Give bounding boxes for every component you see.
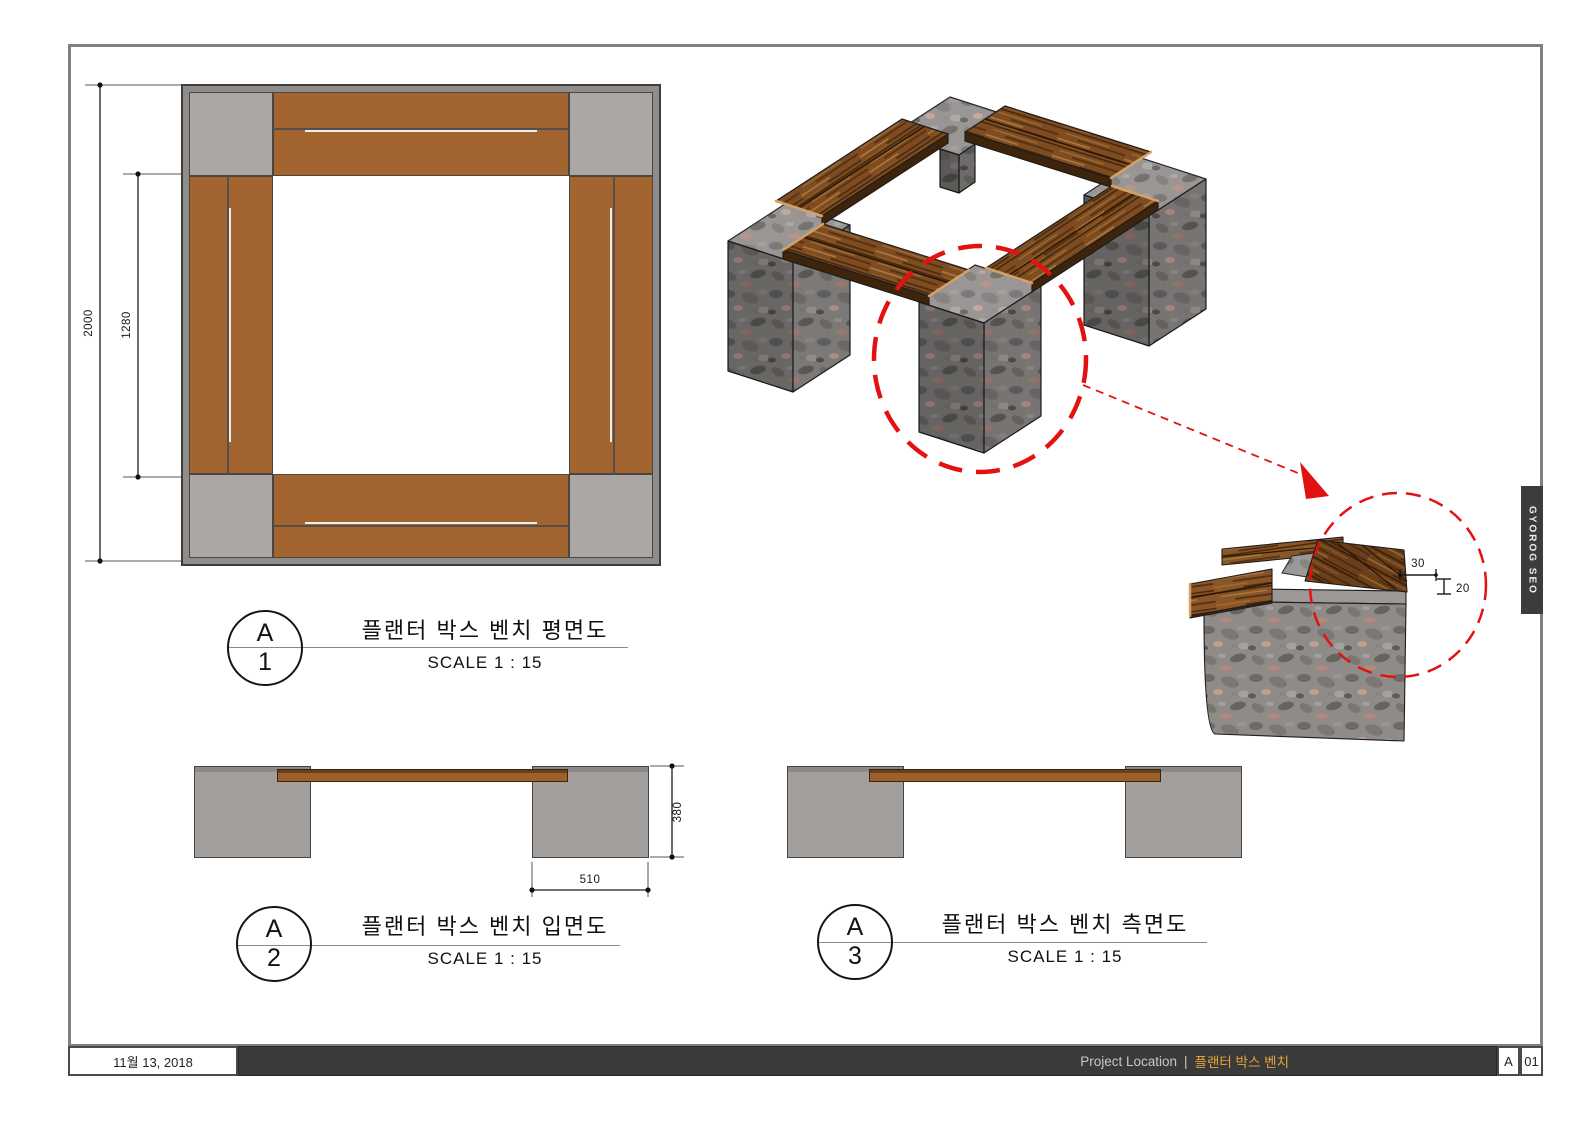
author-tab: GYOROG SEO bbox=[1521, 486, 1543, 614]
revision-letter: A bbox=[1504, 1054, 1513, 1069]
plan-corner-block-ne bbox=[569, 92, 653, 176]
elevation-view-marker: A 2 bbox=[236, 906, 312, 982]
elevation-view-scale: SCALE 1 : 15 bbox=[335, 949, 635, 969]
date-box: 11월 13, 2018 bbox=[68, 1046, 238, 1076]
elevation-marker-number: 2 bbox=[267, 942, 281, 980]
plan-view-scale: SCALE 1 : 15 bbox=[330, 653, 640, 673]
project-name: 플랜터 박스 벤치 bbox=[1195, 1051, 1289, 1071]
plan-view-title: 플랜터 박스 벤치 평면도 bbox=[330, 613, 640, 645]
plan-seam-bottom-gap bbox=[305, 522, 537, 524]
plan-plank-strip-bottom bbox=[273, 474, 569, 558]
elevation-marker-letter: A bbox=[266, 908, 283, 942]
plan-seam-right bbox=[613, 176, 615, 474]
side-plank bbox=[869, 769, 1161, 782]
project-separator: | bbox=[1184, 1054, 1188, 1069]
side-marker-letter: A bbox=[847, 906, 864, 940]
side-marker-number: 3 bbox=[848, 940, 862, 978]
plan-corner-block-nw bbox=[189, 92, 273, 176]
elevation-view-title: 플랜터 박스 벤치 입면도 bbox=[335, 909, 635, 941]
sheet-number: 01 bbox=[1524, 1054, 1538, 1069]
plan-seam-top-gap bbox=[305, 130, 537, 132]
plan-seam-right-gap bbox=[610, 208, 612, 442]
title-block-bar: 11월 13, 2018 Project Location | 플랜터 박스 벤… bbox=[68, 1046, 1543, 1076]
elevation-plank bbox=[277, 769, 568, 782]
plan-view-marker: A 1 bbox=[227, 610, 303, 686]
sheet-number-box: 01 bbox=[1520, 1046, 1543, 1076]
revision-box: A bbox=[1497, 1046, 1520, 1076]
side-view-title: 플랜터 박스 벤치 측면도 bbox=[915, 907, 1215, 939]
project-location-label: Project Location bbox=[1080, 1054, 1177, 1069]
plan-corner-block-sw bbox=[189, 474, 273, 558]
plan-seam-bottom bbox=[273, 525, 569, 527]
plan-plank-strip-left bbox=[189, 176, 273, 474]
plan-plank-strip-top bbox=[273, 92, 569, 176]
drawing-sheet: A 1 플랜터 박스 벤치 평면도 SCALE 1 : 15 A 2 플랜터 박… bbox=[0, 0, 1587, 1122]
plan-marker-number: 1 bbox=[258, 646, 272, 684]
plan-view bbox=[181, 84, 661, 566]
side-view-scale: SCALE 1 : 15 bbox=[915, 947, 1215, 967]
plan-corner-block-se bbox=[569, 474, 653, 558]
project-bar: Project Location | 플랜터 박스 벤치 bbox=[238, 1046, 1497, 1076]
author-tab-text: GYOROG SEO bbox=[1527, 506, 1538, 595]
plan-marker-letter: A bbox=[257, 612, 274, 646]
plan-seam-left-gap bbox=[229, 208, 231, 442]
side-view-marker: A 3 bbox=[817, 904, 893, 980]
date-text: 11월 13, 2018 bbox=[113, 1052, 193, 1071]
